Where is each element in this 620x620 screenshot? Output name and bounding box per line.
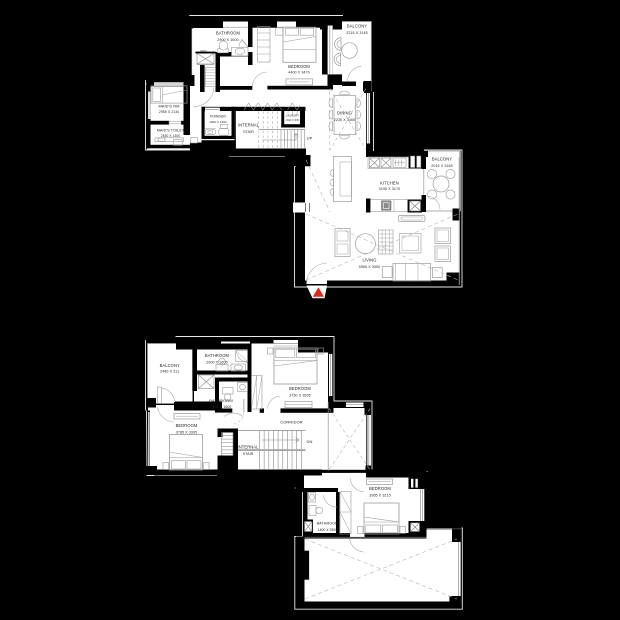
svg-text:BATHROOM: BATHROOM: [317, 522, 339, 526]
svg-text:BALCONY: BALCONY: [432, 157, 452, 162]
svg-text:BEDROOM: BEDROOM: [176, 423, 198, 428]
svg-text:BATHROOM: BATHROOM: [209, 398, 233, 403]
svg-text:2900 X 1600: 2900 X 1600: [217, 38, 238, 42]
svg-text:1600 X 1400: 1600 X 1400: [209, 120, 227, 124]
svg-text:4400 X 3470: 4400 X 3470: [288, 70, 309, 74]
svg-text:3965 X 3215: 3965 X 3215: [369, 494, 390, 498]
svg-text:2480 X 311: 2480 X 311: [160, 370, 179, 374]
svg-text:INTERNAL: INTERNAL: [238, 123, 260, 128]
svg-text:2955 X 2134: 2955 X 2134: [159, 110, 179, 114]
svg-text:BATHROOM: BATHROOM: [205, 353, 230, 358]
svg-text:1600 X 2500: 1600 X 2500: [318, 528, 337, 532]
svg-text:DN: DN: [307, 439, 313, 444]
svg-text:LIVING: LIVING: [362, 258, 376, 263]
svg-text:UP: UP: [307, 136, 313, 141]
svg-text:2215 X 3145: 2215 X 3145: [346, 31, 367, 35]
svg-text:2530 X 1600: 2530 X 1600: [211, 405, 232, 409]
svg-text:2530 X 1300: 2530 X 1300: [161, 134, 180, 138]
svg-text:2900 X 1600: 2900 X 1600: [206, 361, 227, 365]
svg-text:MAID'S TOILET: MAID'S TOILET: [157, 129, 185, 133]
svg-text:BEDROOM: BEDROOM: [369, 486, 391, 491]
svg-text:3785 X 3305: 3785 X 3305: [176, 431, 197, 435]
svg-text:BALCONY: BALCONY: [347, 24, 367, 29]
svg-text:BEDROOM: BEDROOM: [288, 64, 310, 69]
svg-text:2015 X 3165: 2015 X 3165: [431, 164, 452, 168]
svg-text:LAUNDRY: LAUNDRY: [286, 114, 300, 118]
svg-text:2230 X 3465: 2230 X 3465: [334, 118, 355, 122]
svg-text:1600 X 935: 1600 X 935: [286, 119, 300, 122]
svg-text:STAIR: STAIR: [243, 130, 254, 134]
svg-text:KITCHEN: KITCHEN: [380, 181, 399, 186]
svg-text:5965 X 3500: 5965 X 3500: [359, 265, 380, 269]
svg-text:BALCONY: BALCONY: [160, 363, 180, 368]
svg-text:CORRIDOR: CORRIDOR: [280, 420, 303, 425]
svg-text:MAID'S RM: MAID'S RM: [158, 103, 179, 108]
svg-text:STAIR: STAIR: [243, 452, 254, 456]
svg-text:BEDROOM: BEDROOM: [289, 386, 311, 391]
svg-text:3150 X 3170: 3150 X 3170: [379, 187, 400, 191]
svg-text:3750 X 3595: 3750 X 3595: [289, 394, 310, 398]
svg-text:INTERNAL: INTERNAL: [237, 445, 259, 450]
svg-text:POWDER: POWDER: [210, 115, 226, 119]
svg-text:BATHROOM: BATHROOM: [216, 31, 241, 36]
svg-text:W/D: W/D: [200, 49, 207, 53]
svg-text:DINING: DINING: [337, 111, 352, 116]
